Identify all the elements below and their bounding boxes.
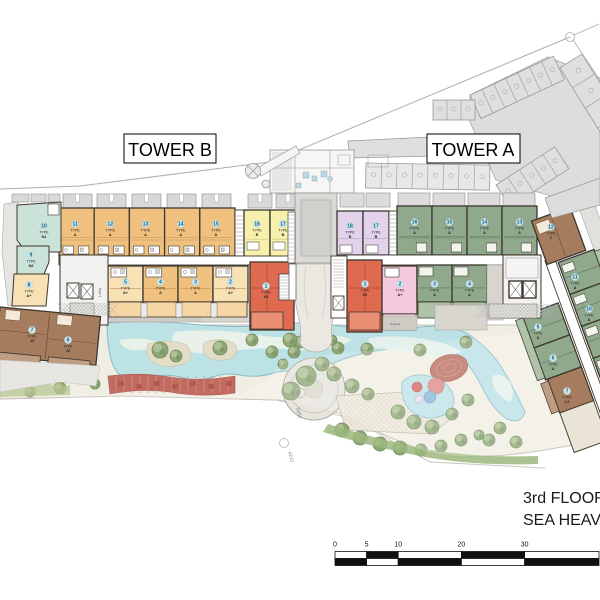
svg-text:J3: J3 [30, 339, 34, 343]
svg-text:B: B [375, 235, 378, 239]
svg-text:10: 10 [41, 224, 47, 230]
svg-text:16: 16 [412, 220, 418, 226]
svg-text:TYPE: TYPE [345, 231, 355, 235]
svg-text:K2: K2 [363, 293, 368, 297]
svg-text:11: 11 [72, 222, 78, 228]
svg-text:5: 5 [124, 280, 127, 286]
svg-text:15: 15 [447, 220, 453, 226]
svg-text:N2: N2 [29, 264, 34, 268]
svg-text:L2: L2 [565, 400, 569, 404]
svg-text:A: A [448, 231, 451, 235]
svg-text:3: 3 [194, 280, 197, 286]
svg-text:SEA HEAVEN PH: SEA HEAVEN PH [523, 512, 600, 529]
svg-text:TYPE: TYPE [176, 229, 186, 233]
svg-text:TYPE: TYPE [27, 335, 37, 339]
svg-text:A: A [74, 233, 77, 237]
svg-text:6: 6 [67, 338, 70, 344]
svg-text:TYPE: TYPE [156, 287, 166, 291]
svg-text:TYPE: TYPE [548, 363, 558, 367]
svg-text:14: 14 [482, 220, 488, 226]
svg-text:TYPE: TYPE [430, 289, 440, 293]
svg-text:A: A [552, 367, 555, 371]
svg-text:4212: 4212 [286, 451, 295, 464]
svg-text:17: 17 [373, 224, 379, 230]
svg-text:A: A [413, 231, 416, 235]
svg-text:10: 10 [394, 542, 402, 549]
svg-text:TYPE: TYPE [360, 289, 370, 293]
svg-text:TYPE: TYPE [211, 229, 221, 233]
svg-text:7: 7 [31, 328, 34, 334]
svg-text:2: 2 [399, 282, 402, 288]
svg-text:A: A [537, 336, 540, 340]
svg-text:20: 20 [458, 542, 466, 549]
svg-text:J2: J2 [66, 349, 70, 353]
svg-text:N1: N1 [42, 235, 47, 239]
svg-text:K2: K2 [264, 295, 269, 299]
svg-text:13: 13 [143, 222, 149, 228]
svg-text:B: B [282, 233, 285, 237]
svg-text:TOWER A: TOWER A [432, 140, 515, 160]
svg-text:10: 10 [586, 307, 592, 313]
svg-text:A: A [518, 231, 521, 235]
svg-text:A: A [159, 291, 162, 295]
svg-text:A: A [483, 231, 486, 235]
svg-text:8: 8 [28, 283, 31, 289]
svg-text:A+: A+ [123, 291, 129, 295]
svg-text:Regular: Regular [390, 322, 401, 326]
svg-text:TYPE: TYPE [515, 227, 525, 231]
svg-text:TYPE: TYPE [371, 231, 381, 235]
svg-text:TYPE: TYPE [562, 396, 572, 400]
svg-text:A+: A+ [398, 293, 404, 297]
svg-text:A: A [588, 318, 591, 322]
svg-text:14: 14 [178, 222, 184, 228]
svg-text:TYPE: TYPE [70, 229, 80, 233]
svg-text:12: 12 [548, 225, 554, 231]
svg-text:A: A [433, 293, 436, 297]
svg-text:3: 3 [433, 282, 436, 288]
svg-text:Lobby: Lobby [98, 287, 102, 297]
svg-text:5: 5 [365, 542, 369, 549]
svg-text:TYPE: TYPE [226, 287, 236, 291]
svg-text:11: 11 [572, 275, 578, 281]
svg-text:A+: A+ [228, 291, 234, 295]
svg-text:TYPE: TYPE [570, 282, 580, 286]
svg-text:TYPE: TYPE [26, 260, 36, 264]
svg-text:TYPE: TYPE [141, 229, 151, 233]
svg-text:TYPE: TYPE [445, 227, 455, 231]
svg-text:13: 13 [517, 220, 523, 226]
svg-text:7: 7 [566, 389, 569, 395]
svg-text:12: 12 [108, 222, 114, 228]
svg-text:TYPE: TYPE [24, 290, 34, 294]
svg-text:TYPE: TYPE [395, 289, 405, 293]
svg-text:A: A [194, 291, 197, 295]
svg-text:TYPE: TYPE [261, 291, 271, 295]
svg-text:4: 4 [159, 280, 162, 286]
svg-text:B: B [349, 235, 352, 239]
svg-text:TYPE: TYPE [252, 229, 262, 233]
svg-text:1: 1 [364, 282, 367, 288]
svg-text:TYPE: TYPE [546, 232, 556, 236]
svg-text:A: A [179, 233, 182, 237]
svg-text:A: A [215, 233, 218, 237]
svg-text:A: A [109, 233, 112, 237]
svg-text:4: 4 [468, 282, 471, 288]
svg-text:A: A [574, 286, 577, 290]
svg-text:18: 18 [347, 224, 353, 230]
svg-text:3rd FLOOR PLAN: 3rd FLOOR PLAN [523, 490, 600, 507]
svg-text:TYPE: TYPE [278, 229, 288, 233]
svg-text:1: 1 [265, 284, 268, 290]
svg-text:0: 0 [333, 542, 337, 549]
svg-text:TYPE: TYPE [584, 314, 594, 318]
svg-text:TYPE: TYPE [410, 227, 420, 231]
svg-text:TYPE: TYPE [63, 345, 73, 349]
svg-text:A: A [144, 233, 147, 237]
svg-text:30: 30 [521, 542, 529, 549]
svg-text:16: 16 [254, 222, 260, 228]
svg-text:TYPE: TYPE [465, 289, 475, 293]
svg-text:TYPE: TYPE [121, 287, 131, 291]
svg-text:2: 2 [229, 280, 232, 286]
svg-text:15: 15 [213, 222, 219, 228]
svg-text:TYPE: TYPE [191, 287, 201, 291]
svg-text:TYPE: TYPE [39, 231, 49, 235]
svg-text:TOWER B: TOWER B [128, 140, 212, 160]
svg-text:17: 17 [280, 222, 286, 228]
svg-text:A+: A+ [27, 294, 33, 298]
svg-text:TYPE: TYPE [480, 227, 490, 231]
svg-text:9: 9 [30, 253, 33, 259]
svg-text:C: C [550, 236, 553, 240]
svg-text:A: A [468, 293, 471, 297]
svg-text:6: 6 [552, 356, 555, 362]
svg-text:5: 5 [537, 325, 540, 331]
svg-text:TYPE: TYPE [106, 229, 116, 233]
svg-text:TYPE: TYPE [533, 332, 543, 336]
svg-text:B: B [256, 233, 259, 237]
